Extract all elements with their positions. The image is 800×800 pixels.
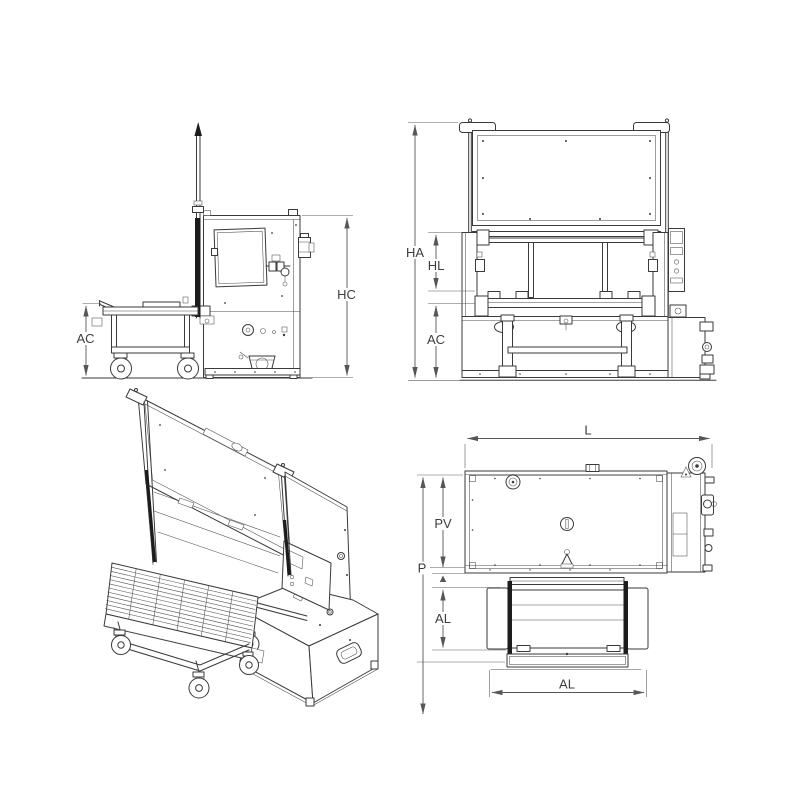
dim-side-ac: AC [76,304,101,376]
top-view: L P PV AL AL [414,423,717,715]
front-pump-unit [668,305,714,379]
front-hl-label: HL [428,258,445,273]
top-body [465,465,667,574]
dim-top-l: L [465,423,712,469]
side-motor [299,234,315,258]
top-pv-label: PV [434,516,452,531]
front-ha-label: HA [406,245,424,260]
machine-drawing: AC HC [0,0,800,800]
top-al-width-label: AL [559,677,575,692]
front-hood [460,119,670,316]
front-view: HA HL AC [403,119,716,380]
side-view-cart [92,297,199,379]
side-hc-label: HC [337,287,356,302]
side-ac-label: AC [76,331,94,346]
side-view-mast-rod [193,122,204,318]
technical-drawing-page: AC HC [0,0,800,800]
top-grating-table [487,578,648,670]
dim-top-pv: PV [430,478,465,568]
isometric-view [104,389,378,707]
top-al-depth-label: AL [435,611,451,626]
front-control-panel [669,229,685,292]
front-ac-label: AC [427,332,445,347]
front-basket [475,292,655,317]
top-right-section [667,458,717,573]
top-p-label: P [418,561,427,576]
side-view: AC HC [76,122,358,379]
dim-top-al-width: AL [490,670,647,697]
top-l-label: L [584,423,591,438]
